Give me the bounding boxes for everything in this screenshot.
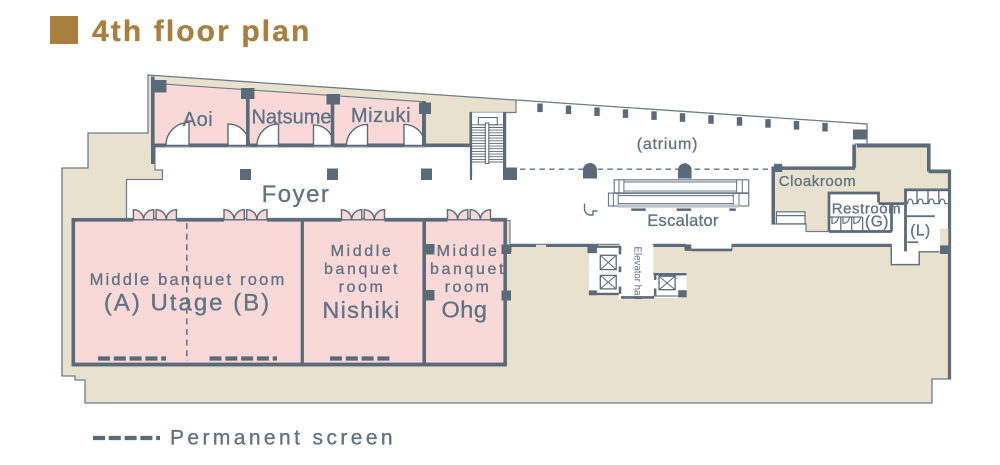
svg-text:banquet: banquet [324, 261, 400, 278]
svg-text:(L): (L) [910, 223, 930, 240]
svg-text:(atrium): (atrium) [637, 136, 699, 153]
svg-text:Ohg: Ohg [442, 297, 488, 323]
svg-text:Middle: Middle [437, 243, 500, 260]
svg-text:4th floor plan: 4th floor plan [92, 15, 311, 48]
svg-text:(A) Utage (B): (A) Utage (B) [104, 290, 271, 317]
svg-text:room: room [339, 279, 386, 296]
svg-text:Natsume: Natsume [251, 107, 331, 129]
svg-text:(G): (G) [865, 213, 889, 230]
svg-text:Escalator: Escalator [647, 212, 719, 230]
svg-text:Elevator hall: Elevator hall [632, 247, 643, 300]
svg-text:Aoi: Aoi [183, 109, 213, 131]
svg-text:Mizuki: Mizuki [351, 105, 411, 127]
svg-text:Middle banquet room: Middle banquet room [90, 271, 287, 289]
svg-text:Permanent screen: Permanent screen [170, 427, 396, 450]
svg-text:Middle: Middle [331, 243, 394, 260]
svg-text:Foyer: Foyer [262, 181, 331, 208]
svg-text:banquet: banquet [430, 261, 506, 278]
svg-text:Nishiki: Nishiki [322, 297, 400, 323]
svg-text:room: room [445, 279, 492, 296]
svg-text:Cloakroom: Cloakroom [779, 173, 856, 190]
